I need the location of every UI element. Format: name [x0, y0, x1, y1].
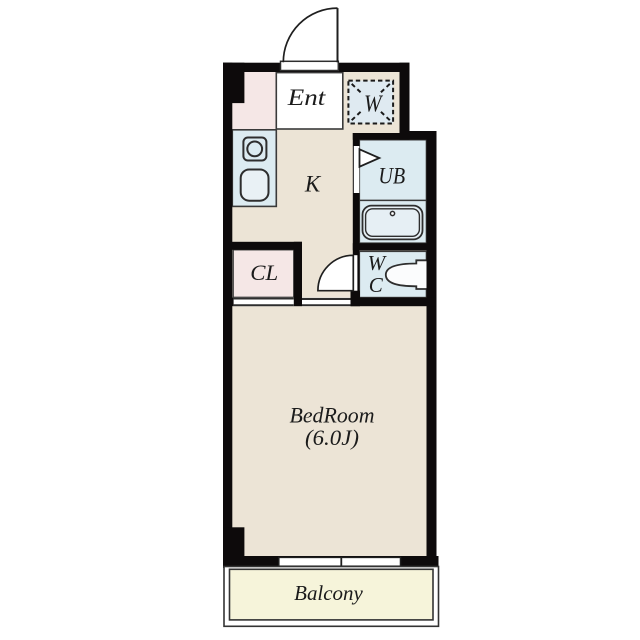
- svg-text:W: W: [364, 92, 383, 118]
- svg-text:W: W: [368, 251, 388, 275]
- svg-text:C: C: [369, 273, 384, 297]
- svg-text:(6.0J): (6.0J): [305, 425, 359, 450]
- svg-text:BedRoom: BedRoom: [290, 403, 375, 428]
- svg-text:Balcony: Balcony: [294, 581, 363, 605]
- svg-text:CL: CL: [250, 260, 278, 285]
- svg-text:Ent: Ent: [287, 85, 326, 110]
- svg-text:K: K: [304, 172, 322, 197]
- svg-text:UB: UB: [378, 163, 405, 188]
